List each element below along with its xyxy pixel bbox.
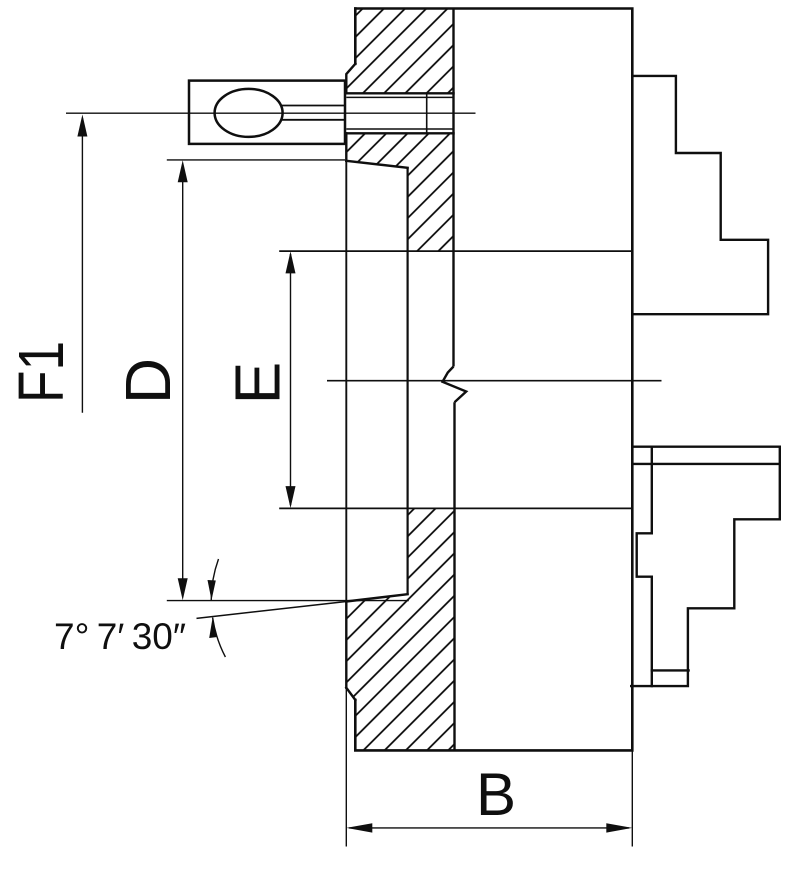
svg-text:E: E: [221, 362, 293, 405]
svg-text:7° 7′ 30″: 7° 7′ 30″: [54, 616, 186, 657]
svg-text:F1: F1: [5, 341, 77, 403]
svg-text:D: D: [112, 358, 184, 404]
svg-text:B: B: [476, 761, 516, 828]
